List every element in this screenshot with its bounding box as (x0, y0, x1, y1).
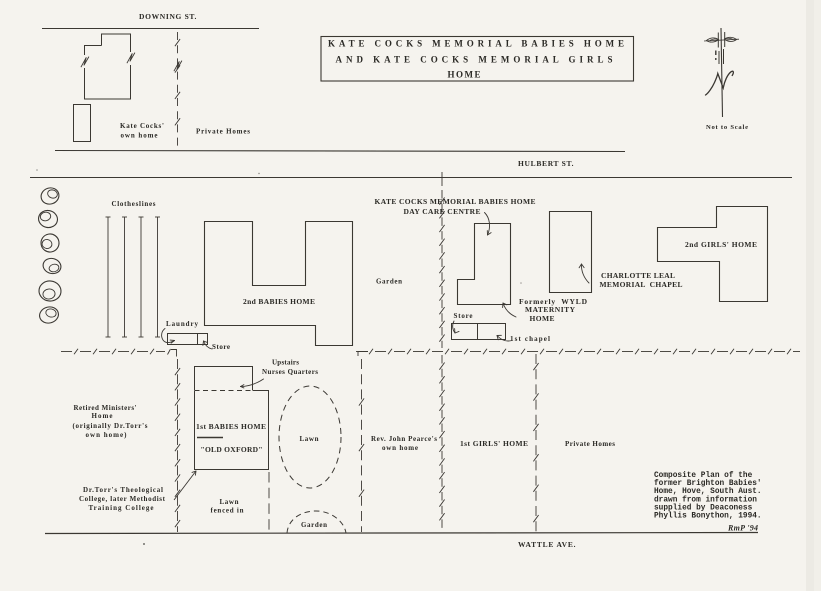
svg-text:Dr.Torr's Theological: Dr.Torr's Theological (83, 486, 163, 494)
svg-text:HULBERT ST.: HULBERT ST. (518, 159, 574, 168)
svg-text:1st BABIES HOME: 1st BABIES HOME (196, 422, 266, 431)
svg-text:Not to Scale: Not to Scale (706, 124, 748, 131)
svg-text:1st GIRLS' HOME: 1st GIRLS' HOME (460, 439, 528, 448)
svg-text:RmP '94: RmP '94 (727, 524, 758, 533)
svg-text:Lawn: Lawn (220, 498, 239, 506)
svg-text:KATE COCKS MEMORIAL BABIES HOM: KATE COCKS MEMORIAL BABIES HOME (375, 197, 536, 206)
svg-text:Private Homes: Private Homes (196, 128, 250, 136)
svg-text:1st chapel: 1st chapel (510, 335, 550, 343)
svg-text:Store: Store (454, 312, 473, 320)
svg-text:Rev. John Pearce's: Rev. John Pearce's (371, 435, 437, 443)
svg-text:Retired Ministers': Retired Ministers' (74, 404, 137, 412)
svg-text:fenced in: fenced in (211, 507, 244, 515)
svg-text:own home): own home) (86, 431, 128, 439)
svg-text:Private Homes: Private Homes (565, 440, 615, 448)
svg-text:HOME: HOME (448, 70, 481, 80)
svg-text:Training College: Training College (89, 504, 154, 512)
svg-text:Store: Store (212, 343, 230, 351)
svg-text:Garden: Garden (376, 278, 402, 286)
svg-text:"OLD OXFORD": "OLD OXFORD" (201, 445, 263, 454)
svg-text:2nd BABIES HOME: 2nd BABIES HOME (243, 297, 315, 306)
svg-text:Phyllis Bonython, 1994.: Phyllis Bonython, 1994. (654, 513, 762, 521)
svg-text:Laundry: Laundry (166, 320, 199, 328)
svg-text:WATTLE AVE.: WATTLE AVE. (518, 540, 576, 549)
svg-text:HOME: HOME (530, 314, 555, 323)
svg-text:Nurses Quarters: Nurses Quarters (262, 368, 318, 376)
svg-text:former Brighton Babies': former Brighton Babies' (654, 480, 762, 488)
svg-text:Composite Plan of the: Composite Plan of the (654, 472, 753, 480)
svg-text:(originally Dr.Torr's: (originally Dr.Torr's (73, 422, 148, 430)
svg-text:Kate Cocks': Kate Cocks' (120, 122, 164, 130)
svg-text:Clotheslines: Clotheslines (112, 200, 156, 208)
svg-text:AND KATE COCKS MEMORIAL GIRLS: AND KATE COCKS MEMORIAL GIRLS (336, 55, 613, 65)
svg-text:MATERNITY: MATERNITY (525, 305, 576, 314)
svg-text:Home, Hove, South Aust.: Home, Hove, South Aust. (654, 488, 762, 496)
svg-text:Lawn: Lawn (300, 435, 319, 443)
svg-text:Garden: Garden (301, 521, 327, 529)
svg-text:College, later Methodist: College, later Methodist (79, 495, 166, 503)
svg-text:own home: own home (382, 444, 418, 452)
svg-text:Upstairs: Upstairs (272, 359, 299, 367)
svg-text:drawn from information: drawn from information (654, 496, 757, 504)
svg-text:own home: own home (121, 132, 158, 140)
svg-text:Home: Home (92, 412, 113, 420)
svg-text:MEMORIAL CHAPEL: MEMORIAL CHAPEL (600, 280, 683, 289)
svg-text:CHARLOTTE LEAL: CHARLOTTE LEAL (601, 271, 675, 280)
svg-text:2nd GIRLS' HOME: 2nd GIRLS' HOME (685, 240, 757, 249)
svg-text:supplied by Deaconess: supplied by Deaconess (654, 504, 753, 512)
svg-text:DOWNING ST.: DOWNING ST. (139, 12, 197, 21)
